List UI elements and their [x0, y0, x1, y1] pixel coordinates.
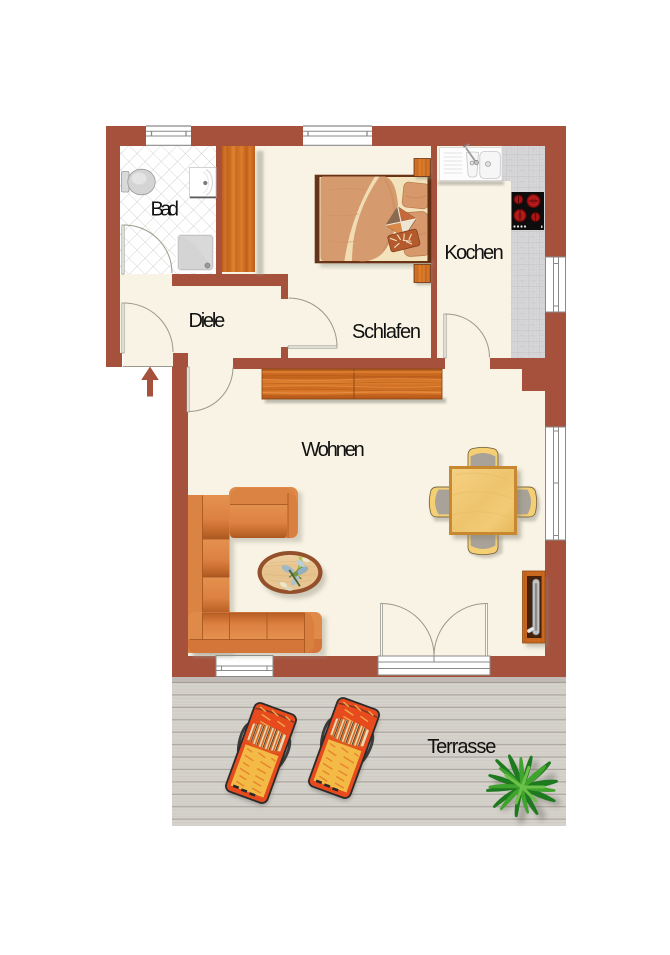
svg-text:Schlafen: Schlafen: [352, 321, 421, 343]
svg-text:Terrasse: Terrasse: [427, 736, 496, 758]
svg-text:Kochen: Kochen: [444, 242, 503, 264]
svg-text:Wohnen: Wohnen: [301, 439, 364, 461]
svg-text:Diele: Diele: [189, 310, 226, 332]
svg-text:Bad: Bad: [151, 198, 180, 220]
